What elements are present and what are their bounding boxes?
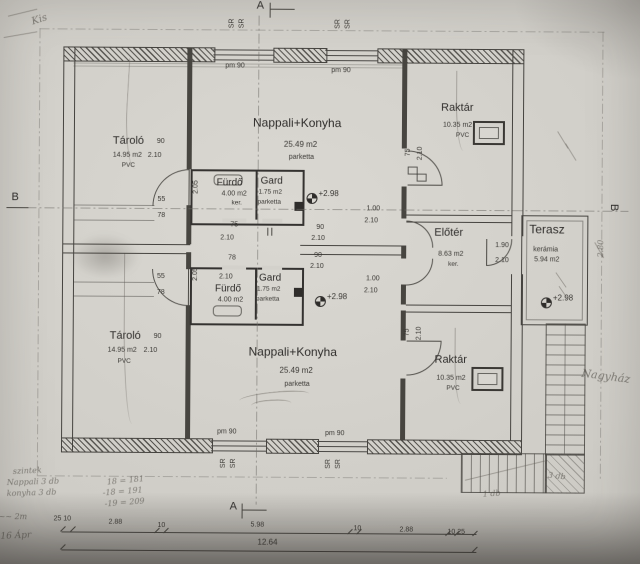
section-marker-a-top-tick [270,3,271,18]
parapet-tag: pm 90 [331,67,351,74]
wall-bottom-1 [61,437,213,453]
dim-door-h: 2.10 [311,235,325,242]
window-tag-sr: SR SR [335,19,352,29]
dim-door-w: 1.00 [366,275,380,282]
bathtub-symbol-bottom [213,305,242,316]
dim-door-w: 1.00 [366,205,380,212]
room-area: 4.00 m2 [222,190,247,197]
meter-symbol [417,174,427,182]
level-value: +2.98 [553,294,573,303]
pencil-crease [454,328,465,404]
dim-door-h: 2.10 [417,147,424,161]
section-marker-a-top-line [271,9,295,10]
door-gap [262,219,282,223]
dim-door-w: 90 [316,224,324,231]
handwriting-right-margin: Nagyház [581,367,631,386]
room-name-furdo-top: Fürdő [217,178,243,189]
section-marker-a-bottom: A [230,501,237,513]
note-date: 16 Ápr [0,530,31,541]
stairs-note-2: 1 db [482,488,500,498]
door-leaf-raktar-bottom [407,341,441,342]
level-value: +2.98 [319,190,339,199]
wall-bottom-2 [266,439,319,454]
room-floor: ker. [231,200,242,207]
roof-line-top [40,28,605,32]
double-door-mark [267,228,268,236]
dim-door-h: 2.10 [416,327,423,341]
note-calc2: -18 = 191 [102,485,143,497]
wall-eloter-left-a [401,246,406,258]
sr-label: SR [239,18,246,28]
room-area: 8.63 m2 [438,251,463,258]
room-name-gard-bottom: Gard [259,274,281,285]
wall-raktar-bottom-b [400,378,405,439]
wall-eloter-top [406,215,511,224]
dim-door-h: 2.10 [495,257,509,264]
window-tag-sr: SR SR [325,459,342,469]
window-tag-sr: SR SR [220,458,237,468]
door-height: 2.10 [144,347,158,354]
level-marker-icon [315,296,326,307]
handwriting-top-left: Kis [30,12,48,27]
window-tag-sr: SR SR [229,18,246,28]
wall-right-1 [511,49,524,213]
dim-door-h: 2.10 [310,263,324,270]
room-floor: parketta [256,297,280,304]
section-marker-a-bottom-tick [242,504,243,519]
stairs-bottom [461,453,547,494]
sr-label: SR [220,458,227,468]
dim-total: 12.64 [257,539,277,548]
room-name-furdo-bottom: Fürdő [215,284,241,295]
parapet-tag: pm 90 [225,62,245,69]
dim-height: 2.05 [192,267,199,281]
door-leaf-raktar-top [408,185,442,186]
dim-bottom-c0: 25 10 [54,515,72,522]
room-area: 1.75 m2 [257,287,281,294]
note-line2: Nappali 3 db [7,476,60,487]
wall-right-4 [510,323,523,440]
dim-door: 2.10 [219,273,233,280]
dim-door-w: 75 [405,149,412,157]
room-name-nappali-bottom: Nappali+Konyha [249,346,337,359]
wall-eloter-bottom [406,305,511,314]
dim-door-h: 2.10 [364,217,378,224]
sr-label: SR [335,459,342,469]
sr-label: SR [325,459,332,469]
wet-block-top [190,169,304,226]
door-leaf-terasz-door [486,239,487,265]
room-floor: kerámia [533,246,558,253]
leader-line [74,204,154,205]
dim-height: 2.05 [193,180,200,194]
room-area: 1.75 m2 [259,190,283,197]
furdo-door-width: 75 [230,221,238,228]
dim-bottom-c3: 5.98 [250,522,264,529]
leader-line [74,295,154,296]
window-bottom-right [317,441,367,452]
dim-door-w: 1.90 [495,242,509,249]
wall-eloter-left-b [401,284,406,304]
leader-line [74,219,154,220]
roof-line-left [37,28,41,476]
wall-top-2 [273,48,327,63]
section-marker-a-top: A [257,1,264,13]
section-marker-b-left: B [11,192,18,204]
window-top-left [213,49,273,60]
room-name-eloter: Előtér [434,228,463,240]
section-marker-b-left-line [6,207,28,208]
door-width: 90 [154,333,162,340]
window-top-right [325,50,377,61]
door-arc-eloter-bottom [406,259,433,286]
room-name-nappali-top: Nappali+Konyha [253,117,341,130]
dim-door-w: 90 [314,252,322,259]
door-gap [262,266,282,270]
door-arc-eloter-top [406,221,433,248]
section-line-b [8,207,628,212]
wall-tarolo-top-a [187,47,193,169]
room-name-terasz: Terasz [529,223,564,236]
leader-line [74,281,154,282]
parapet-tag: pm 90 [325,430,345,437]
section-marker-b-right: B [607,204,619,211]
room-area: 4.00 m2 [218,296,243,303]
room-floor: ker. [448,262,459,269]
dim-line-segments [61,531,476,535]
dim-door: 78 [228,254,236,261]
wall-raktar-top-a [402,48,408,148]
double-door-mark [271,228,272,236]
chimney-symbol-bottom [294,288,303,297]
dim-line-total [61,549,476,553]
sr-label: SR [345,19,352,29]
scanned-floor-plan: A A B B SR SR SR SR SR SR SR SR pm 90 pm… [0,0,640,564]
sr-label: SR [335,19,342,29]
scan-smudge [70,233,140,278]
dim-window-h: 78 [157,289,165,296]
pencil-crease [123,254,139,424]
level-marker-icon [306,193,317,204]
level-marker-icon [541,297,552,308]
level-value: +2.98 [327,293,347,302]
pencil-stroke [4,31,38,38]
dim-window-w: 55 [157,273,165,280]
room-name-gard-top: Gard [261,177,283,188]
sr-label: SR [230,458,237,468]
room-floor: parketta [257,200,281,207]
parapet-tag: pm 90 [217,428,237,435]
room-area: 25.49 m2 [279,367,312,376]
section-line-a [256,16,260,505]
note-2m: ~~ 2m [0,512,27,521]
note-calc3: -19 = 209 [104,496,145,508]
dim-window-w: 55 [157,196,165,203]
dim-tick [472,531,478,537]
dim-door-h: 2.10 [364,287,378,294]
section-marker-a-bottom-line [243,510,267,511]
room-area: 5.94 m2 [534,256,559,263]
drawing-sheet: A A B B SR SR SR SR SR SR SR SR pm 90 pm… [0,0,640,564]
flue-symbol-bottom-inner [477,373,497,385]
sr-label: SR [229,18,236,28]
window-bottom-left [211,440,266,451]
pencil-tick [565,143,576,161]
flue-symbol-top-inner [479,127,499,139]
room-floor: parketta [289,154,314,161]
room-area: 25.49 m2 [284,141,317,150]
stairs-note-1: 3 db [547,471,566,482]
dim-window-h: 78 [157,212,165,219]
wet-block-bottom [190,267,304,326]
pencil-crease [456,71,469,151]
door-width: 90 [157,138,165,145]
dim-door-w: 75 [404,329,411,337]
door-height: 2.10 [148,152,162,159]
dim-door: 2.10 [220,234,234,241]
note-line1: szintek [13,466,42,476]
dim-bottom-c1: 2.88 [109,519,123,526]
roof-line-bottom [37,475,447,479]
door-gap [222,265,246,269]
wall-top-3 [377,48,524,64]
note-line3: konyha 3 db [7,488,57,498]
room-floor: parketta [284,381,309,388]
